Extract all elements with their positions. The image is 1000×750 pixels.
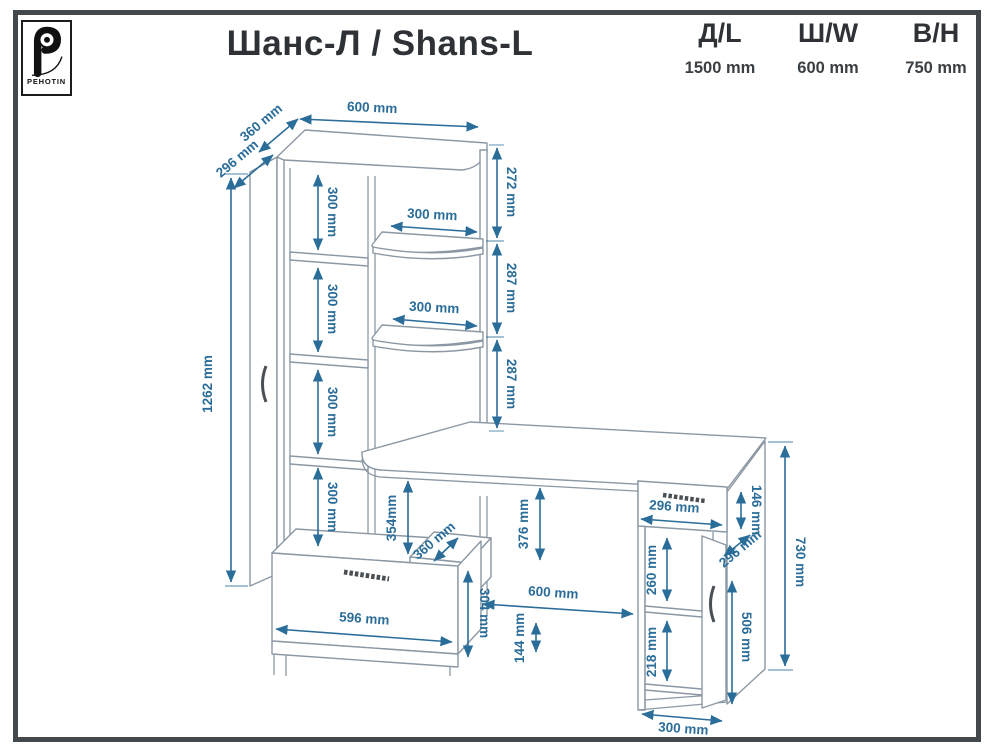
spec-length-label: Д/L: [698, 18, 741, 49]
dim-cab-depth: 300 mm: [658, 719, 709, 737]
dim-top-width: 600 mm: [347, 99, 398, 116]
brand-logo: PEHOTIN: [21, 20, 72, 96]
dim-desk-height: 730 mm: [793, 537, 808, 587]
dim-cab-gap-upper: 260 mm: [644, 545, 659, 595]
dim-shelf-gap-a: 287 mm: [504, 263, 519, 313]
spec-width-label: Ш/W: [798, 18, 858, 49]
dim-cab-door-height: 506 mm: [739, 612, 754, 662]
header: PEHOTIN Шанс-Л / Shans-L Д/L 1500 mm Ш/W…: [0, 0, 1000, 100]
spec-height-label: В/Н: [913, 18, 960, 49]
dim-tower-gap-4: 300 mm: [325, 482, 340, 532]
spec-height: В/Н 750 mm: [900, 18, 972, 78]
dim-plinth-height: 144 mm: [512, 613, 527, 663]
dim-upper-right-gap: 272 mm: [504, 167, 519, 217]
furniture-diagram: 600 mm 360 mm 296 mm 1262 mm 300 mm 300 …: [0, 0, 1000, 750]
brand-name: PEHOTIN: [27, 77, 66, 86]
dim-tower-gap-2: 300 mm: [325, 284, 340, 334]
dim-shelf-gap-b: 287 mm: [504, 359, 519, 409]
dim-cab-gap-lower: 218 mm: [644, 627, 659, 677]
dim-cab-drawer-height: 146 mm: [749, 485, 764, 535]
spec-length-value: 1500 mm: [685, 59, 756, 78]
spec-width-value: 600 mm: [797, 59, 858, 78]
spec-length: Д/L 1500 mm: [684, 18, 756, 78]
dim-small-shelf-b: 300 mm: [409, 299, 460, 317]
page-title: Шанс-Л / Shans-L: [150, 24, 610, 64]
dim-kneehole-width: 600 mm: [528, 583, 579, 601]
dim-top-depth: 360 mm: [237, 101, 285, 145]
pehotin-logo-icon: [26, 23, 68, 79]
spec-width: Ш/W 600 mm: [792, 18, 864, 78]
dim-small-shelf-a: 300 mm: [407, 206, 458, 224]
spec-table: Д/L 1500 mm Ш/W 600 mm В/Н 750 mm: [684, 18, 972, 78]
dim-tower-gap-1: 300 mm: [325, 187, 340, 237]
spec-height-value: 750 mm: [905, 59, 966, 78]
dim-tower-height: 1262 mm: [200, 355, 215, 413]
dim-desk-clearance-mid: 376 mm: [516, 499, 531, 549]
dim-desk-clearance-left: 354mm: [384, 495, 399, 542]
drawer-pedestal: [272, 529, 491, 676]
dim-tower-gap-3: 300 mm: [325, 387, 340, 437]
curved-shelves: [372, 232, 483, 352]
page: 600 mm 360 mm 296 mm 1262 mm 300 mm 300 …: [0, 0, 1000, 750]
dim-drawer-height: 304 mm: [477, 588, 492, 638]
